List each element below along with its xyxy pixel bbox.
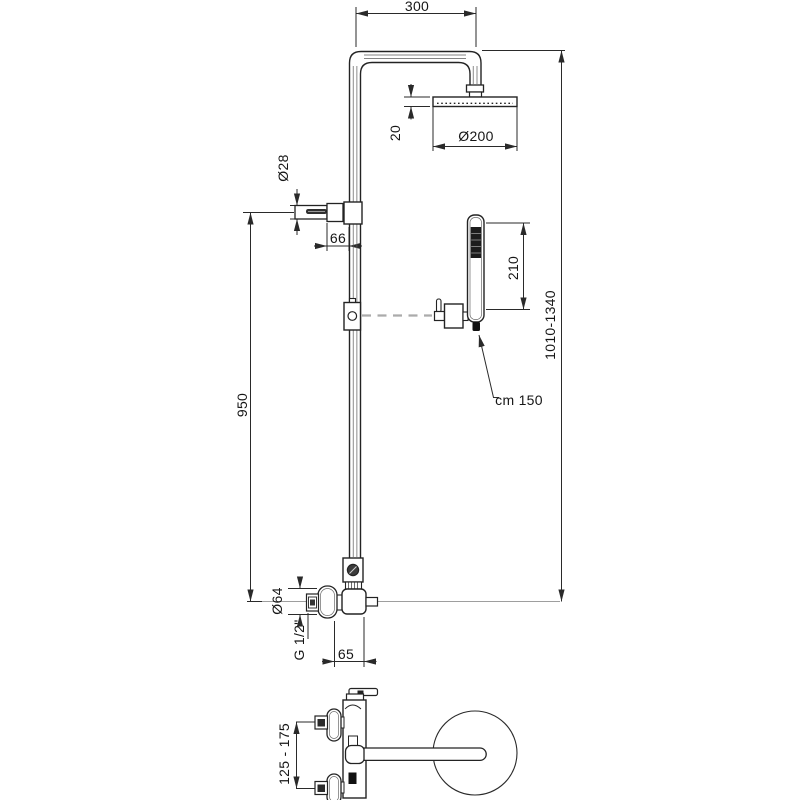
holder-pin bbox=[437, 299, 442, 312]
dim-pipe-diameter-label: Ø28 bbox=[275, 154, 291, 181]
technical-drawing bbox=[0, 0, 800, 800]
holder-block bbox=[445, 304, 464, 328]
dim-column-height bbox=[243, 213, 294, 602]
dim-total-height-label: 1010-1340 bbox=[542, 290, 558, 360]
slider-knob bbox=[348, 312, 357, 321]
dim-inlet-spacing bbox=[296, 722, 315, 789]
knurled-neck bbox=[346, 582, 362, 589]
hand-shower bbox=[435, 215, 485, 331]
dim-bracket-offset-label: 66 bbox=[330, 230, 346, 246]
spout-joint bbox=[346, 746, 365, 764]
hose-length-label: cm 150 bbox=[495, 392, 543, 408]
dim-top-width-label: 300 bbox=[405, 0, 429, 14]
slider bbox=[344, 299, 361, 331]
mixer-detail-dark bbox=[349, 773, 357, 785]
shower-head-plate bbox=[433, 97, 517, 107]
bottom-union-escutcheon bbox=[327, 774, 341, 800]
head-connector-nut bbox=[467, 85, 484, 92]
dim-head-diameter-label: Ø200 bbox=[458, 128, 493, 144]
reference-lines bbox=[262, 316, 560, 602]
supply-elbow bbox=[342, 589, 366, 614]
hose-nipple bbox=[473, 322, 481, 331]
dim-head-thickness bbox=[404, 84, 430, 120]
head-connector-collar bbox=[470, 92, 482, 97]
wall-mixer bbox=[315, 689, 486, 800]
dim-wall-offset-label: 65 bbox=[338, 646, 354, 662]
thread-size-label: G 1/2" bbox=[291, 619, 307, 660]
top-union-escutcheon bbox=[327, 709, 341, 741]
bracket-cone bbox=[327, 204, 343, 222]
dim-inlet-spacing-label: 125 - 175 bbox=[276, 723, 292, 785]
drawing-canvas: 300 Ø200 20 Ø28 66 210 1010-1340 950 cm … bbox=[0, 0, 800, 800]
dim-escutcheon-diameter-label: Ø64 bbox=[269, 587, 285, 614]
dim-handshower-length-label: 210 bbox=[505, 256, 521, 280]
mixer-spout bbox=[364, 748, 486, 760]
bracket-collar bbox=[344, 202, 362, 224]
lower-fittings bbox=[307, 558, 378, 618]
overhead-shower bbox=[433, 85, 517, 107]
hose-leader-line bbox=[479, 335, 499, 398]
dim-column-height-label: 950 bbox=[234, 393, 250, 417]
holder-arm bbox=[435, 312, 445, 321]
wall-bracket bbox=[295, 202, 362, 224]
dim-head-thickness-label: 20 bbox=[387, 125, 403, 141]
elbow-side-pin bbox=[366, 598, 378, 607]
